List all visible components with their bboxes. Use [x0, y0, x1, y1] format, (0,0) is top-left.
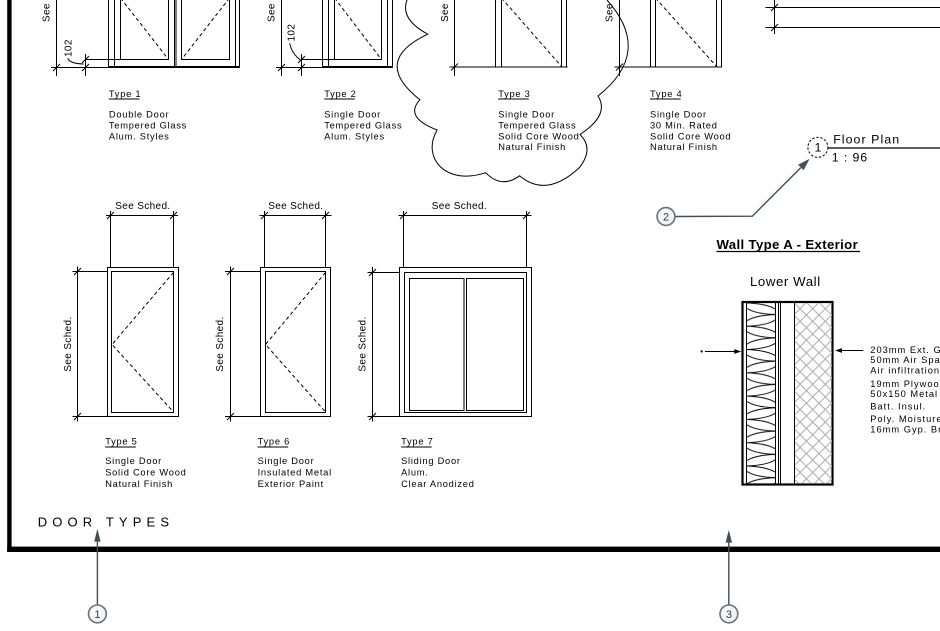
svg-text:Tempered Glass: Tempered Glass — [324, 120, 402, 130]
svg-text:Floor Plan: Floor Plan — [833, 132, 900, 146]
svg-text:Batt. Insul.: Batt. Insul. — [870, 401, 926, 411]
svg-text:Insulated Metal: Insulated Metal — [258, 468, 332, 478]
svg-text:Solid Core Wood: Solid Core Wood — [650, 131, 731, 141]
svg-text:See Sched.: See Sched. — [268, 201, 323, 212]
svg-text:See Sched.: See Sched. — [63, 316, 74, 371]
svg-text:1 : 96: 1 : 96 — [832, 151, 868, 165]
svg-text:16mm Gyp. Brd.: 16mm Gyp. Brd. — [870, 424, 940, 434]
svg-text:See Sched.: See Sched. — [605, 0, 616, 22]
svg-text:Alum. Styles: Alum. Styles — [109, 131, 170, 141]
svg-text:Tempered Glass: Tempered Glass — [498, 120, 576, 130]
svg-text:102: 102 — [64, 39, 75, 57]
svg-text:Air infiltration Barrier: Air infiltration Barrier — [870, 365, 940, 375]
svg-text:See Sched.: See Sched. — [41, 0, 52, 22]
svg-text:Single Door: Single Door — [650, 110, 707, 120]
svg-text:Type 2: Type 2 — [324, 89, 356, 99]
svg-text:Natural Finish: Natural Finish — [498, 142, 566, 152]
svg-text:Type 4: Type 4 — [650, 89, 682, 99]
svg-text:Single Door: Single Door — [258, 456, 315, 466]
svg-text:Solid Core Wood: Solid Core Wood — [105, 468, 186, 478]
svg-text:203mm Ext. Grout: 203mm Ext. Grout — [870, 345, 940, 355]
svg-text:Clear Anodized: Clear Anodized — [401, 479, 475, 489]
svg-text:Type 6: Type 6 — [258, 436, 290, 446]
svg-text:Lower Wall: Lower Wall — [750, 274, 821, 289]
svg-text:Tempered Glass: Tempered Glass — [109, 120, 187, 130]
svg-text:Alum.: Alum. — [401, 468, 429, 478]
svg-text:Natural Finish: Natural Finish — [105, 479, 173, 489]
svg-text:Single Door: Single Door — [324, 110, 381, 120]
svg-text:Type 5: Type 5 — [105, 436, 137, 446]
svg-text:2: 2 — [663, 212, 669, 224]
svg-text:Wall Type A - Exterior: Wall Type A - Exterior — [717, 237, 859, 252]
svg-text:30 Min. Rated: 30 Min. Rated — [650, 120, 718, 130]
svg-text:1: 1 — [814, 141, 821, 155]
svg-text:Type 1: Type 1 — [109, 89, 141, 99]
svg-text:See Sched.: See Sched. — [215, 316, 226, 371]
svg-text:Double Door: Double Door — [109, 110, 169, 120]
svg-text:See Sched.: See Sched. — [432, 201, 487, 212]
svg-text:Single Door: Single Door — [498, 110, 555, 120]
svg-text:DOOR TYPES: DOOR TYPES — [38, 515, 175, 530]
svg-text:3: 3 — [726, 609, 732, 621]
svg-text:Exterior Paint: Exterior Paint — [258, 479, 324, 489]
svg-text:19mm Plywood: 19mm Plywood — [870, 379, 940, 389]
svg-text:Alum. Styles: Alum. Styles — [324, 131, 385, 141]
svg-text:102: 102 — [286, 24, 297, 42]
svg-text:See Sched.: See Sched. — [115, 201, 170, 212]
svg-text:1: 1 — [94, 609, 100, 621]
svg-text:Poly. Moisture Barr.: Poly. Moisture Barr. — [870, 414, 940, 424]
svg-text:See Sched.: See Sched. — [440, 0, 451, 22]
svg-text:Type 7: Type 7 — [401, 436, 433, 446]
svg-text:Single Door: Single Door — [105, 456, 162, 466]
svg-text:Sliding Door: Sliding Door — [401, 456, 461, 466]
svg-text:Natural Finish: Natural Finish — [650, 142, 718, 152]
svg-text:See Sched.: See Sched. — [357, 316, 368, 371]
svg-text:Solid Core Wood: Solid Core Wood — [498, 131, 579, 141]
svg-text:50x150 Metal Frm.: 50x150 Metal Frm. — [870, 389, 940, 399]
svg-text:Type 3: Type 3 — [498, 89, 530, 99]
svg-text:See Sched.: See Sched. — [266, 0, 277, 22]
svg-text:50mm Air Space: 50mm Air Space — [870, 355, 940, 365]
